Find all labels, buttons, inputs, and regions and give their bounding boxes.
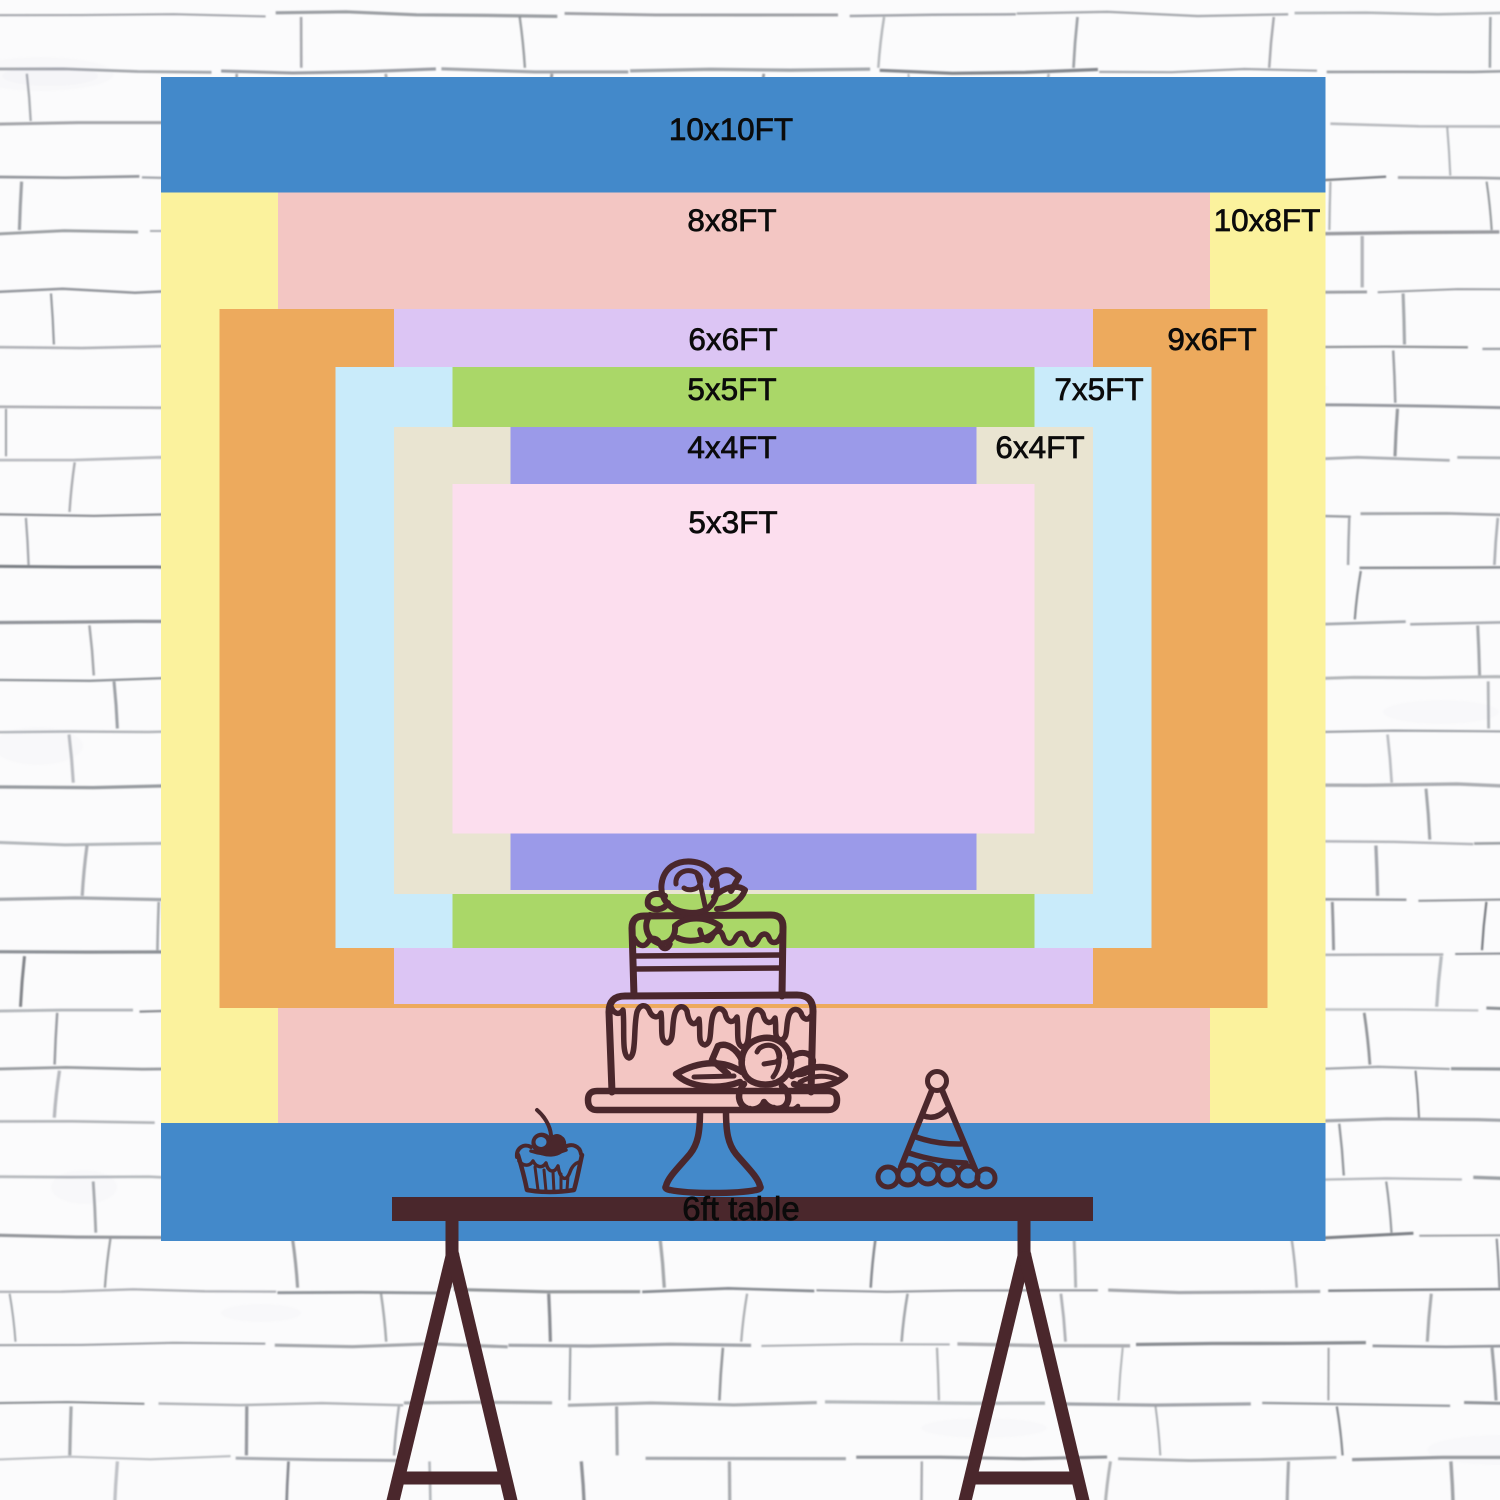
svg-text:5x5FT: 5x5FT [687,371,776,407]
svg-text:9x6FT: 9x6FT [1167,321,1256,357]
svg-text:10x8FT: 10x8FT [1214,202,1321,238]
svg-text:5x3FT: 5x3FT [688,504,777,540]
svg-text:6x6FT: 6x6FT [688,321,777,357]
svg-text:8x8FT: 8x8FT [687,202,776,238]
svg-text:7x5FT: 7x5FT [1054,371,1143,407]
svg-text:4x4FT: 4x4FT [687,429,776,465]
svg-text:6x4FT: 6x4FT [995,429,1084,465]
svg-text:6ft table: 6ft table [682,1190,799,1227]
svg-text:10x10FT: 10x10FT [669,111,793,147]
